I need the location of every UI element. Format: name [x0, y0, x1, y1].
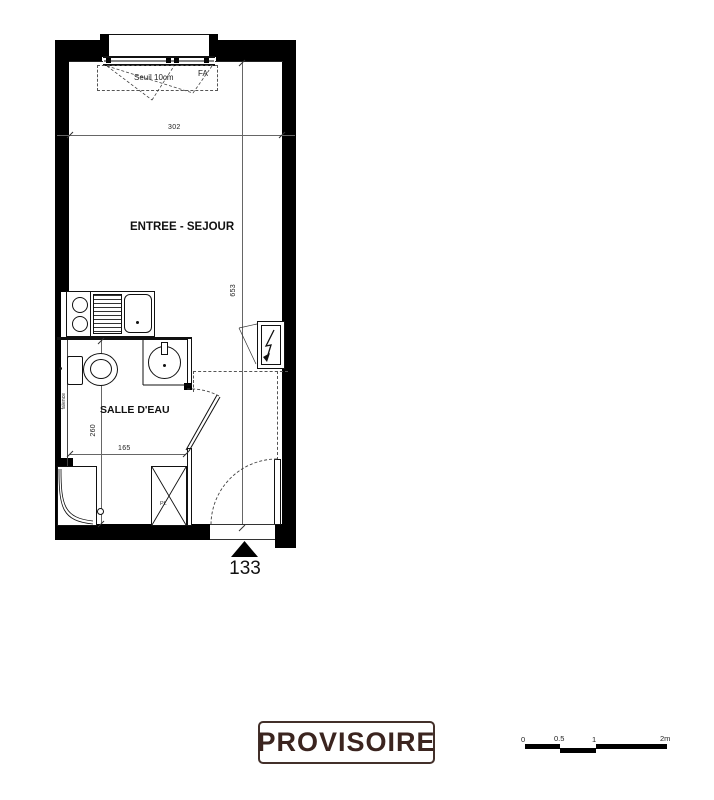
unit-marker-triangle	[231, 541, 258, 557]
bath-door-swing-arc	[187, 389, 219, 396]
scale-bar-seg-3	[596, 744, 667, 749]
lightning-bolt-icon	[266, 330, 274, 358]
provisional-stamp-label: PROVISOIRE	[257, 727, 435, 758]
linework-overlay	[0, 0, 714, 800]
unit-number: 133	[222, 558, 268, 580]
provisional-stamp-box: PROVISOIRE	[258, 721, 435, 764]
panel-door-lines	[239, 324, 257, 364]
scale-label-0: 0	[521, 735, 525, 744]
lightning-bolt-arrowhead	[263, 353, 270, 362]
scale-bar-seg-1	[525, 744, 560, 749]
scale-bar-seg-2	[560, 748, 596, 753]
dim-ticks	[67, 60, 285, 531]
duct-curve	[59, 469, 93, 524]
washbasin-counter-lines	[143, 340, 192, 385]
window-swing-icon	[107, 66, 212, 100]
scale-label-05: 0.5	[554, 734, 564, 743]
scale-label-1: 1	[592, 735, 596, 744]
closet-cross-icon	[152, 467, 186, 525]
scale-bar: 0 0.5 1 2m	[515, 733, 675, 758]
bath-door-leaf	[186, 395, 220, 451]
floor-plan-page: Seuil 10cm FA 302 653 260 165 ENTREE - S…	[0, 0, 714, 800]
entry-door-swing-arc	[211, 459, 277, 525]
scale-label-2m: 2m	[660, 734, 670, 743]
